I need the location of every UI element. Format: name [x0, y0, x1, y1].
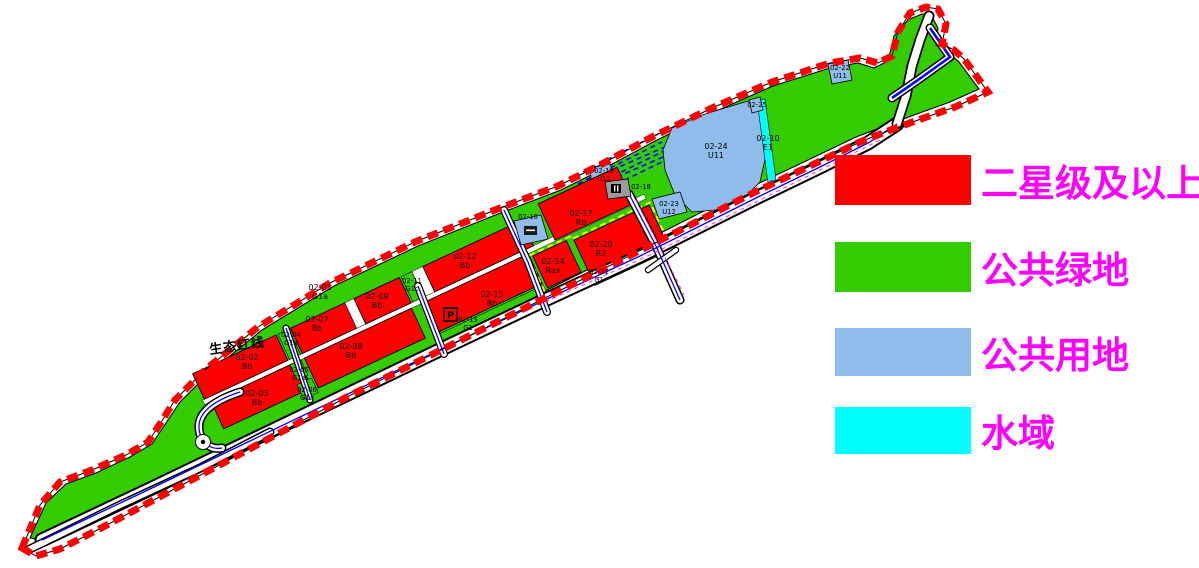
- legend-label-water: 水域: [981, 403, 1055, 457]
- parcel-label-02-08: 02-08: [339, 342, 362, 351]
- svg-text:G1a: G1a: [312, 292, 328, 301]
- svg-text:E1: E1: [763, 143, 773, 152]
- parcel-label-02-03: 02-03: [245, 389, 268, 398]
- legend-label-public-land: 公共用地: [981, 325, 1129, 379]
- parcel-label-02-16: 02-16: [518, 213, 538, 221]
- parcel-label-02-17: 02-17: [569, 209, 592, 218]
- parcel-label-02-12: 02-12: [453, 252, 476, 261]
- svg-text:G1: G1: [463, 324, 473, 332]
- parcel-label-02-02: 02-02: [235, 353, 258, 362]
- legend-row-star-hotel: 二星级及以上: [835, 153, 1199, 207]
- svg-text:U11: U11: [708, 151, 724, 160]
- parcel-label-02-04: 02-04: [281, 331, 301, 339]
- svg-text:U11: U11: [833, 72, 847, 80]
- svg-text:Bb: Bb: [487, 299, 498, 308]
- svg-text:Bb: Bb: [460, 261, 471, 270]
- legend-swatch-cyan: [835, 407, 971, 454]
- svg-text:Rax: Rax: [545, 266, 560, 275]
- svg-text:Bb: Bb: [242, 362, 253, 371]
- parcel-label-02-10: 02-10: [756, 134, 779, 143]
- parcel-label-02-18: 02-18: [631, 183, 651, 191]
- legend-swatch-red: [835, 155, 971, 205]
- planning-map-canvas: P 生态红线 02-01 G1a 02-02 Bb 02-03 Bb 02-04…: [0, 0, 1199, 568]
- parcel-label-02-25: 02-25: [747, 101, 767, 109]
- svg-text:G1c: G1c: [405, 285, 419, 293]
- parcel-label-02-06: 02-06: [297, 386, 317, 394]
- parcel-label-02-19: 02-19: [594, 167, 614, 175]
- svg-text:R2: R2: [596, 249, 607, 258]
- legend-row-water: 水域: [835, 403, 1055, 457]
- parcel-label-02-20: 02-20: [589, 240, 612, 249]
- svg-text:Bb: Bb: [372, 301, 383, 310]
- parcel-label-02-23: 02-23: [659, 200, 679, 208]
- parcel-label-02-07: 02-07: [305, 315, 328, 324]
- parcel-label-02-15: 02-15: [458, 316, 478, 324]
- svg-text:Bb: Bb: [252, 398, 263, 407]
- parcel-label-02-05: 02-05: [289, 366, 309, 374]
- roundabout: [196, 435, 211, 450]
- building-icon: [524, 226, 537, 235]
- legend-row-public-land: 公共用地: [835, 325, 1129, 379]
- parcel-label-02-11: 02-11: [402, 277, 422, 285]
- parcel-label-02-13: 02-13: [480, 290, 503, 299]
- svg-text:Bb: Bb: [312, 324, 323, 333]
- legend-swatch-blue: [835, 328, 971, 376]
- parcel-label-02-22: 02-22: [830, 64, 850, 72]
- svg-text:P: P: [447, 311, 454, 322]
- legend-row-public-green: 公共绿地: [835, 240, 1129, 294]
- parcel-label-02-09: 02-09: [365, 292, 388, 301]
- svg-text:G1: G1: [594, 276, 604, 284]
- parcel-label-02-24: 02-24: [704, 142, 727, 151]
- svg-text:Bb: Bb: [346, 351, 357, 360]
- parcel-label-02-14: 02-14: [541, 257, 564, 266]
- parcel-label-02-21: 02-21: [589, 268, 609, 276]
- svg-text:U11: U11: [597, 175, 611, 183]
- svg-text:U12: U12: [662, 208, 676, 216]
- parcel-label-02-01: 02-01: [308, 283, 331, 292]
- legend-swatch-green: [835, 242, 971, 292]
- legend-label-public-green: 公共绿地: [981, 240, 1129, 294]
- svg-text:G1a: G1a: [292, 374, 306, 382]
- svg-text:G1a: G1a: [284, 339, 298, 347]
- svg-text:Rb: Rb: [576, 218, 587, 227]
- substation-icon: [611, 184, 621, 193]
- legend-label-star-hotel: 二星级及以上: [981, 153, 1199, 207]
- svg-text:G1a: G1a: [300, 394, 314, 402]
